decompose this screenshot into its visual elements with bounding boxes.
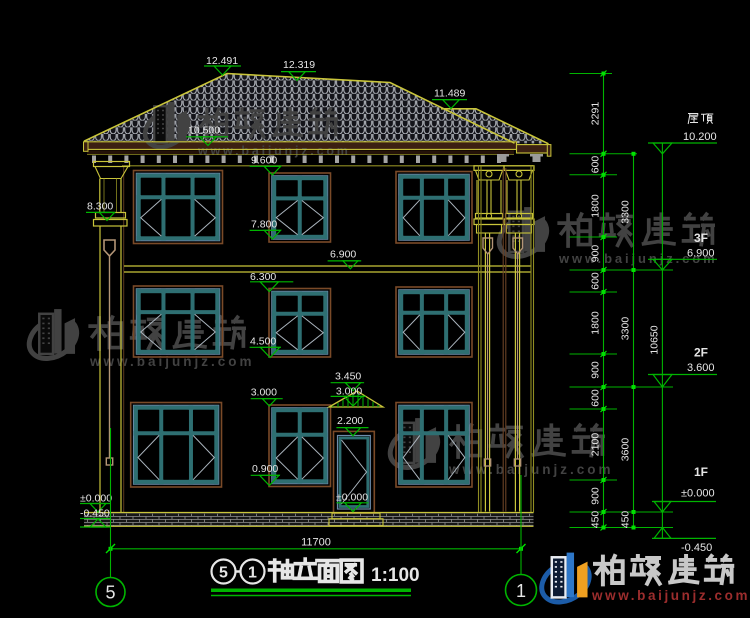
- svg-text:www.baijunjz.com: www.baijunjz.com: [591, 588, 750, 603]
- svg-text:3.600: 3.600: [687, 362, 715, 374]
- svg-text:600: 600: [590, 389, 602, 407]
- svg-text:6.900: 6.900: [687, 248, 715, 260]
- svg-text:600: 600: [590, 272, 602, 290]
- svg-text:1:100: 1:100: [371, 565, 420, 586]
- svg-text:5: 5: [219, 565, 228, 582]
- svg-text:1800: 1800: [590, 194, 602, 218]
- svg-text:450: 450: [590, 511, 602, 529]
- svg-text:900: 900: [590, 361, 602, 379]
- svg-text:3F: 3F: [694, 231, 708, 245]
- svg-text:900: 900: [590, 245, 602, 263]
- svg-text:10.500: 10.500: [188, 125, 220, 137]
- svg-text:3.000: 3.000: [336, 386, 362, 398]
- svg-text:±0.000: ±0.000: [336, 492, 368, 504]
- svg-text:1800: 1800: [590, 311, 602, 335]
- svg-text:9.600: 9.600: [251, 155, 277, 167]
- svg-text:600: 600: [590, 156, 602, 174]
- svg-text:±0.000: ±0.000: [681, 488, 715, 500]
- svg-text:2100: 2100: [590, 433, 602, 457]
- svg-text:8.300: 8.300: [87, 201, 113, 213]
- svg-text:2F: 2F: [694, 346, 708, 360]
- svg-text:2.200: 2.200: [337, 415, 363, 427]
- svg-text:900: 900: [590, 487, 602, 505]
- svg-text:10.200: 10.200: [683, 131, 717, 143]
- svg-text:5: 5: [105, 583, 115, 603]
- svg-text:11700: 11700: [301, 537, 331, 549]
- svg-text:11.489: 11.489: [434, 88, 465, 100]
- svg-text:1: 1: [248, 565, 257, 582]
- svg-text:3.450: 3.450: [335, 371, 361, 383]
- svg-text:12.491: 12.491: [206, 55, 238, 67]
- svg-text:3.000: 3.000: [251, 387, 277, 399]
- svg-text:4.500: 4.500: [250, 336, 276, 348]
- svg-text:0.900: 0.900: [252, 463, 278, 475]
- svg-text:±0.000: ±0.000: [80, 493, 112, 505]
- svg-text:3300: 3300: [620, 317, 632, 341]
- svg-text:1: 1: [516, 581, 526, 601]
- svg-text:3600: 3600: [620, 438, 632, 462]
- svg-text:6.900: 6.900: [330, 249, 356, 261]
- svg-text:3300: 3300: [620, 200, 632, 224]
- svg-text:1F: 1F: [694, 465, 708, 479]
- svg-text:10650: 10650: [649, 325, 661, 354]
- svg-text:12.319: 12.319: [283, 59, 315, 71]
- svg-text:7.800: 7.800: [251, 219, 277, 231]
- svg-text:2291: 2291: [590, 102, 602, 126]
- svg-text:450: 450: [620, 511, 632, 529]
- svg-text:-0.450: -0.450: [80, 508, 110, 520]
- svg-text:-0.450: -0.450: [681, 542, 712, 554]
